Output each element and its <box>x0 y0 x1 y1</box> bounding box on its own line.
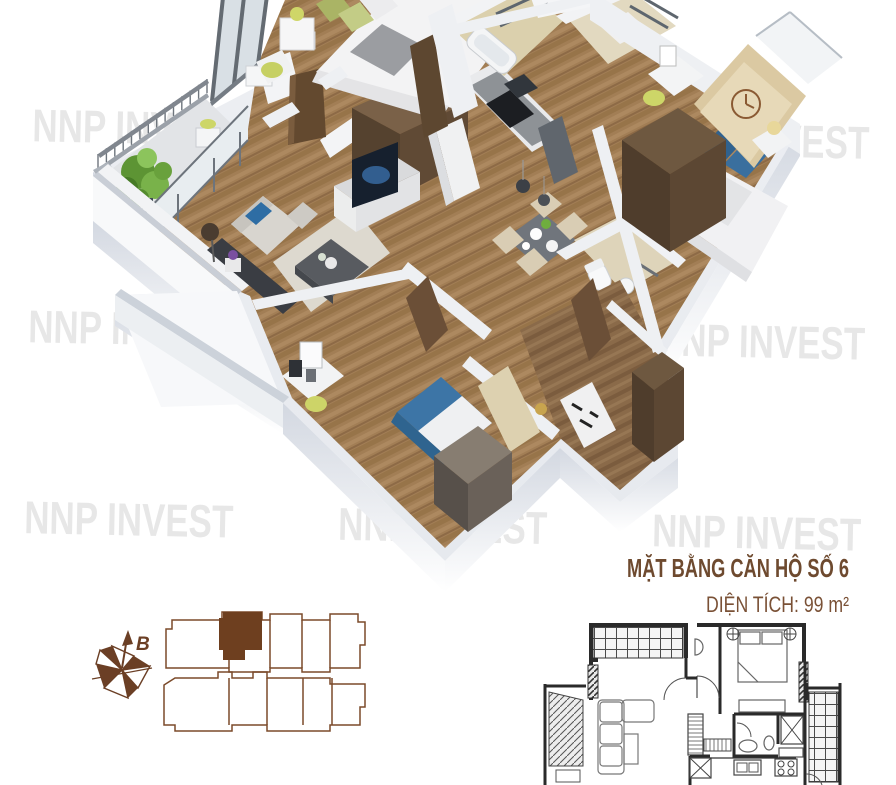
svg-text:NNP INVEST: NNP INVEST <box>24 491 234 547</box>
svg-text:MẶT BẰNG CĂN HỘ SỐ 6: MẶT BẰNG CĂN HỘ SỐ 6 <box>627 553 849 583</box>
svg-text:DIỆN TÍCH: 99 m²: DIỆN TÍCH: 99 m² <box>706 592 849 617</box>
svg-text:B: B <box>136 634 150 655</box>
